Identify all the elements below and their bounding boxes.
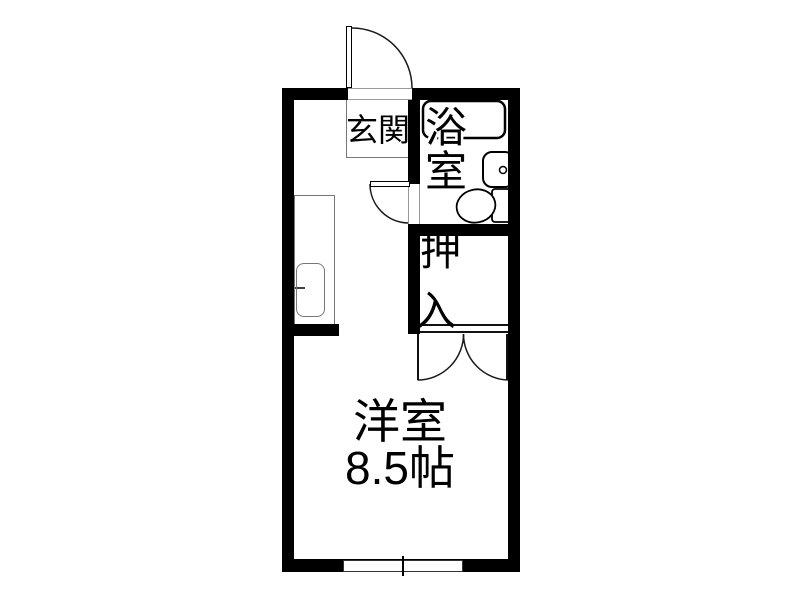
bathroom-label: 浴室 bbox=[423, 106, 469, 194]
kitchen-sink bbox=[296, 263, 325, 317]
entrance-door-arc bbox=[352, 28, 412, 88]
wall-kitchen-stub bbox=[282, 324, 339, 336]
entrance-door-leaf bbox=[346, 26, 352, 88]
closet-door-left-leaf bbox=[417, 334, 419, 380]
closet-label: 押入 bbox=[415, 253, 511, 300]
wash-basin-drain bbox=[500, 167, 507, 174]
genkan-label: 玄関 bbox=[346, 97, 410, 158]
main-room-name: 洋室 bbox=[302, 398, 498, 445]
wall-top-right bbox=[412, 88, 520, 100]
bathroom-door-leaf bbox=[370, 181, 410, 187]
sliding-window-center-tick bbox=[402, 556, 404, 576]
bathroom-door-arc bbox=[370, 184, 409, 223]
main-room-size: 8.5帖 bbox=[302, 445, 498, 492]
main-room-label: 洋室 8.5帖 bbox=[302, 398, 498, 492]
closet-door-right-arc bbox=[464, 334, 510, 380]
closet-door-left-arc bbox=[418, 334, 464, 380]
floorplan-canvas: 玄関 浴室 押入 洋室 8.5帖 bbox=[0, 0, 800, 600]
